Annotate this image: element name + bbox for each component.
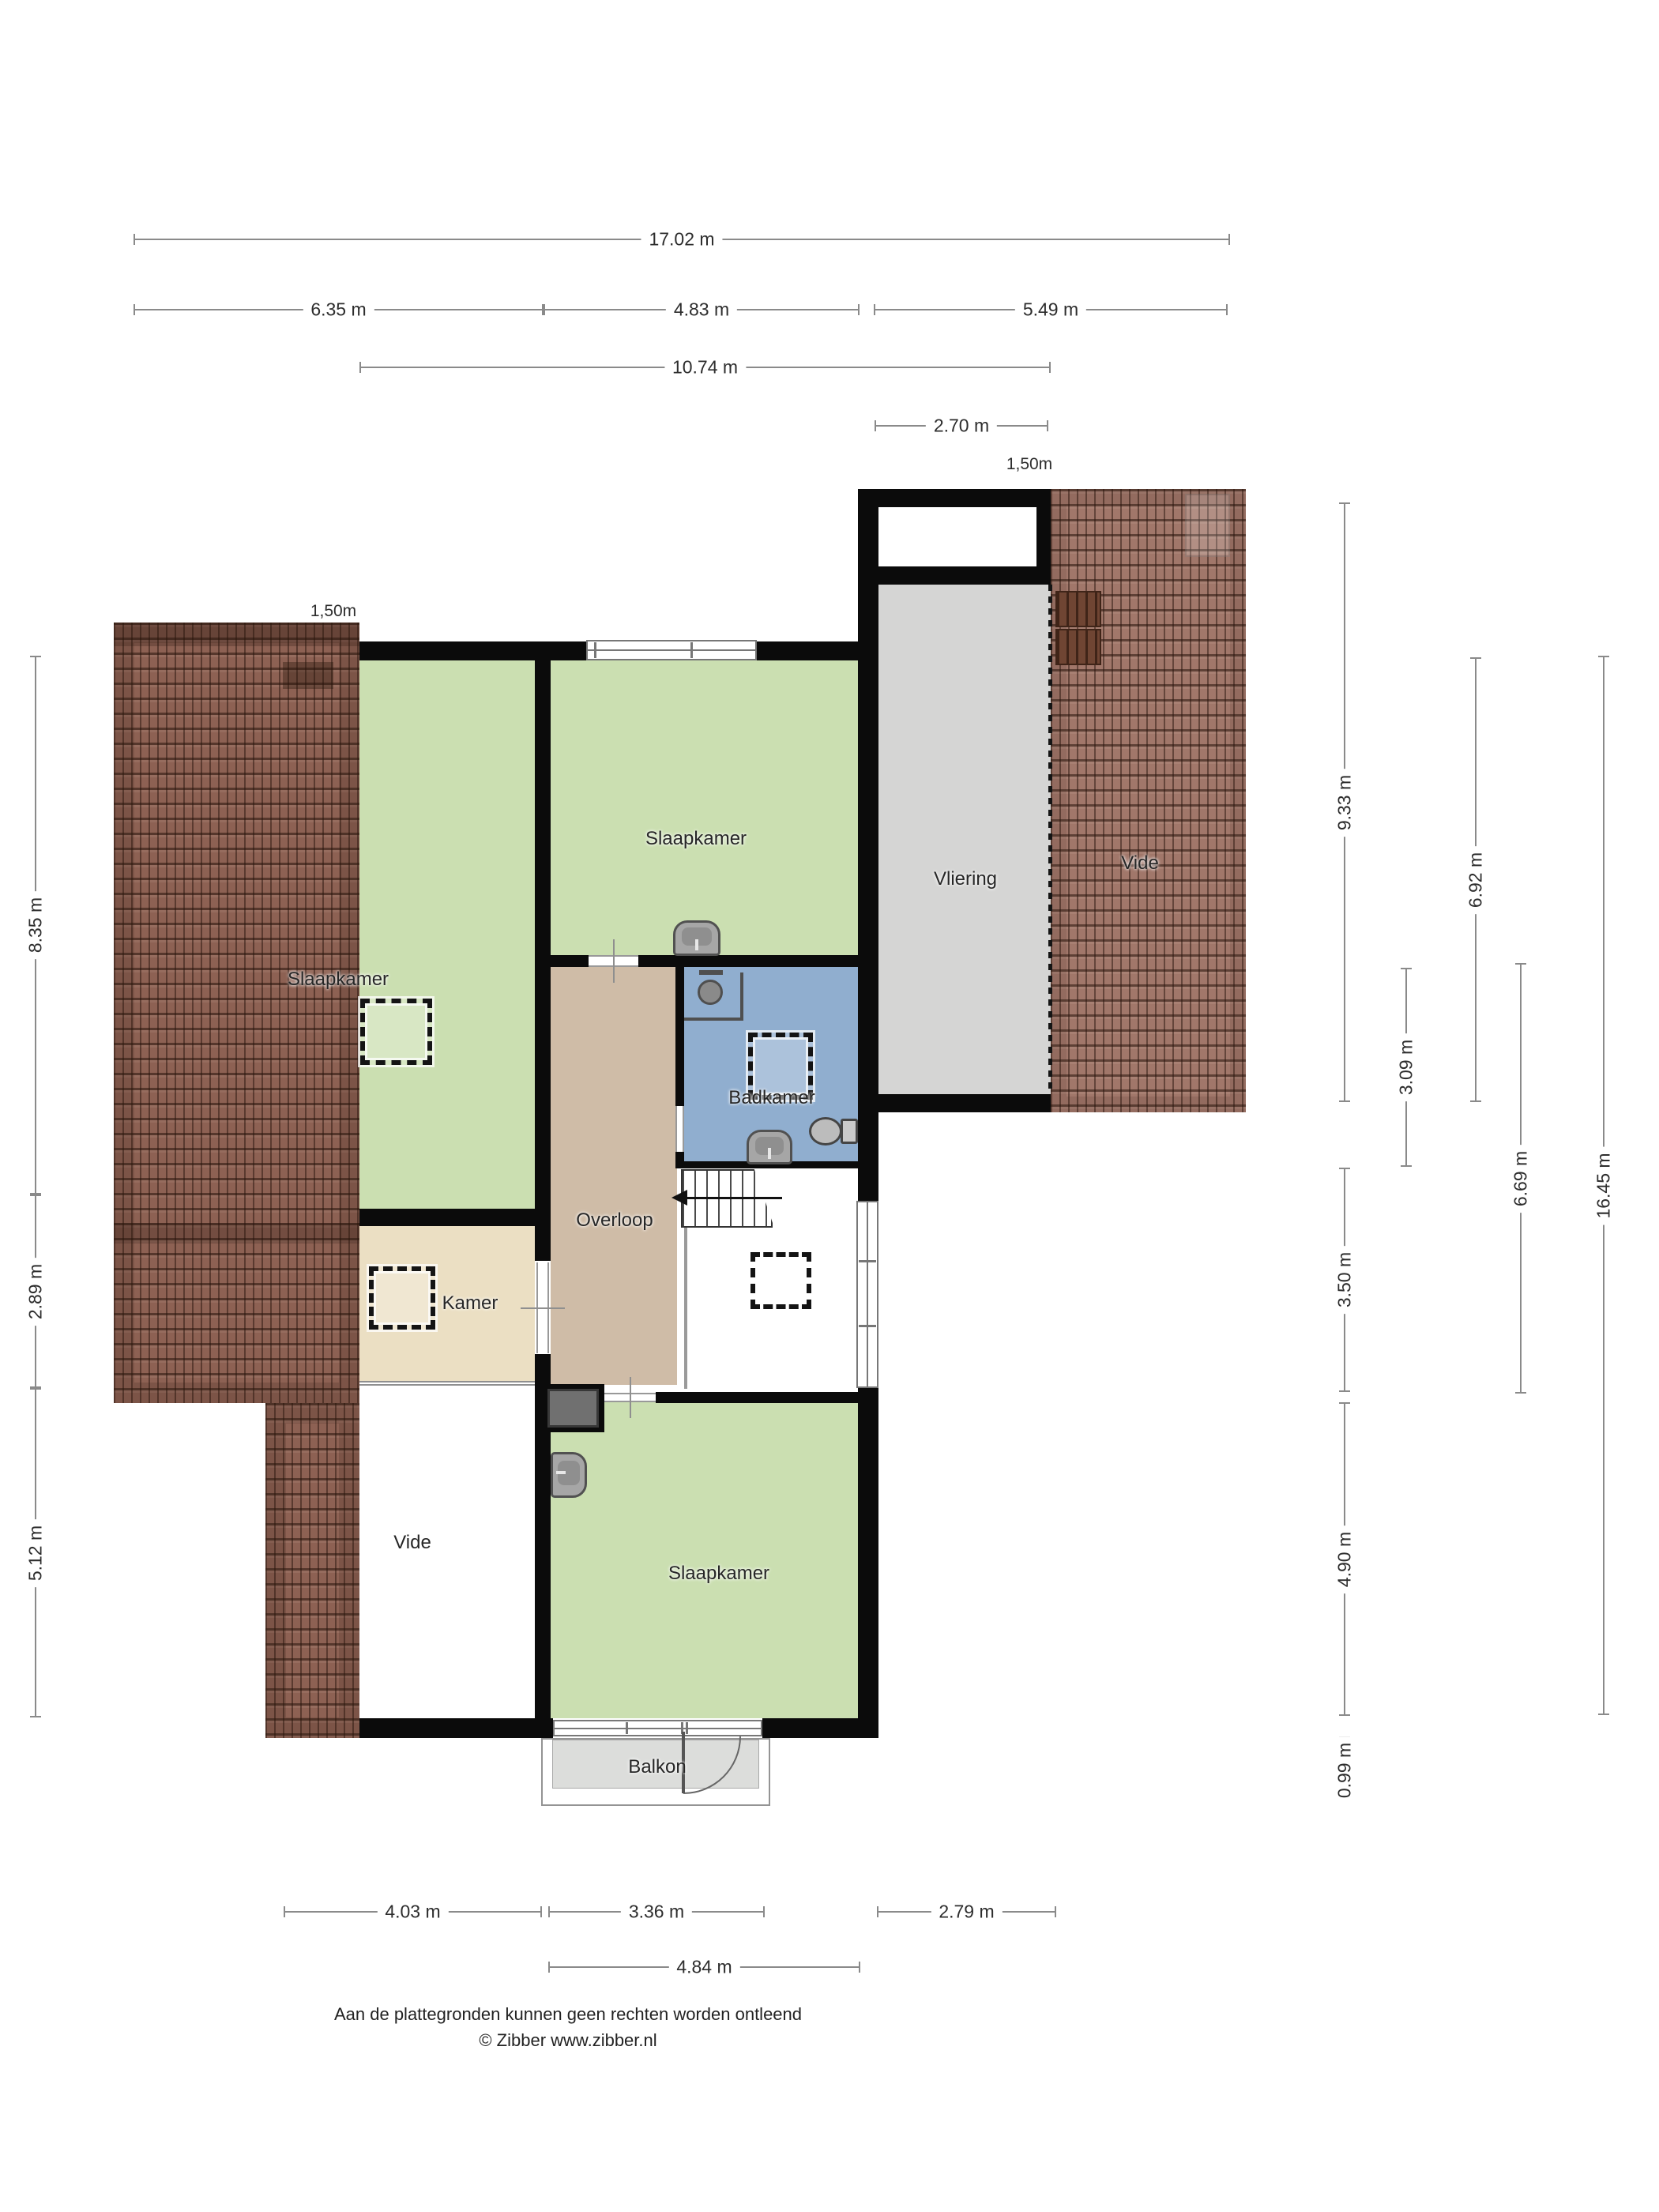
skylight-slaapkamer-left: [360, 999, 432, 1065]
window-top-glass: [588, 649, 755, 651]
dim-part: 3.50 m: [1334, 1246, 1356, 1314]
sink-badkamer: [747, 1130, 792, 1164]
window-balkon-divider-2: [686, 1722, 688, 1734]
dim-part: [1339, 1168, 1350, 1169]
window-east-glass: [867, 1202, 868, 1386]
dim-part: 17.02 m: [641, 229, 722, 250]
roof-right-ladder-2: [1055, 629, 1101, 665]
dim-part: [284, 1906, 285, 1917]
dim-part: 8.35 m: [25, 891, 47, 959]
dim-part: [1339, 1100, 1350, 1102]
dim-h-17.02m: 17.02 m: [134, 233, 1230, 246]
dim-part: [544, 304, 545, 315]
dim-part: 6.35 m: [303, 299, 374, 321]
room-slaapkamer-top: [547, 660, 858, 955]
dim-part: [874, 304, 875, 315]
dim-part: [1515, 963, 1526, 965]
room-label-badkamer-5: Badkamer: [728, 1087, 814, 1109]
chimney-block: [547, 1389, 599, 1428]
window-top: [586, 640, 757, 660]
sink-slaapkamer-top: [673, 920, 720, 956]
roof-left-strip: [265, 1403, 359, 1738]
door-slaapkamer-top-tick: [613, 939, 615, 983]
dim-part: [1470, 1100, 1481, 1102]
room-label-slaapkamer-0: Slaapkamer: [288, 969, 389, 991]
toilet-icon: [809, 1117, 842, 1145]
dim-v-5.12m: 5.12 m: [29, 1388, 42, 1717]
dim-part: 2.79 m: [931, 1902, 1002, 1923]
roof-right-ladder-1: [1055, 591, 1101, 627]
room-label-vide-8: Vide: [393, 1532, 431, 1554]
dim-h-4.83m: 4.83 m: [544, 303, 860, 316]
dim-part: [1055, 1906, 1056, 1917]
window-balkon-divider-0: [626, 1722, 628, 1734]
skylight-kamer: [369, 1266, 435, 1330]
dim-part: 6.92 m: [1465, 845, 1487, 913]
dim-part: 10.74 m: [664, 357, 746, 378]
door-slaapkamer-bottom-tick: [630, 1377, 631, 1418]
dim-h-6.35m: 6.35 m: [134, 303, 544, 316]
dim-part: [30, 1716, 41, 1717]
wall-annex-sub: [878, 566, 1052, 585]
room-slaapkamer-bottom: [551, 1402, 858, 1718]
kamer-vide-line: [359, 1381, 535, 1386]
dim-part: 4.90 m: [1334, 1525, 1356, 1593]
dim-h-5.49m: 5.49 m: [874, 303, 1228, 316]
window-east-divider-1: [859, 1325, 876, 1327]
wall-slpk-bottom-top: [656, 1392, 878, 1403]
dim-part: [1047, 420, 1048, 431]
dim-part: [1228, 234, 1230, 245]
wall-mid-b: [638, 955, 860, 967]
dim-part: [1470, 657, 1481, 659]
sink-slaapkamer-top-faucet-icon: [695, 939, 698, 950]
dim-part: [1401, 1165, 1412, 1167]
room-label-vliering-6: Vliering: [934, 868, 997, 890]
dim-part: [877, 1906, 878, 1917]
dim-v-16.45m: 16.45 m: [1597, 656, 1610, 1715]
skylight-stairwell: [750, 1252, 811, 1309]
dim-part: [134, 304, 135, 315]
dim-part: 5.12 m: [25, 1518, 47, 1586]
dim-v-2.89m: 2.89 m: [29, 1194, 42, 1388]
room-label-kamer-3: Kamer: [442, 1292, 498, 1315]
roof-right-dotted-line-3: [1048, 585, 1052, 1094]
room-overloop: [551, 966, 677, 1385]
footer-disclaimer: Aan de plattegronden kunnen geen rechten…: [334, 2001, 802, 2053]
dim-h-2.70m: 2.70 m: [875, 419, 1048, 432]
room-annex-room: [878, 507, 1036, 566]
room-label-slaapkamer-2: Slaapkamer: [668, 1563, 769, 1585]
dim-part: [1401, 968, 1412, 969]
dim-part: 0.99 m: [1334, 1736, 1356, 1804]
wall-east-main: [858, 489, 878, 1738]
stairs-arrow: [686, 1197, 782, 1199]
room-label-balkon-9: Balkon: [628, 1756, 686, 1778]
dim-v-6.92m: 6.92 m: [1469, 657, 1482, 1102]
dim-v-3.50m: 3.50 m: [1338, 1168, 1351, 1392]
dim-part: 3.09 m: [1396, 1033, 1417, 1101]
dim-v-6.69m: 6.69 m: [1514, 963, 1527, 1394]
dim-part: 2.70 m: [926, 416, 997, 437]
dim-v-8.35m: 8.35 m: [29, 656, 42, 1194]
door-badkamer: [675, 1106, 684, 1152]
wall-west-overloop-upper: [535, 656, 551, 1261]
dim-v-0.99m: 0.99 m: [1338, 1736, 1351, 1804]
room-label-overloop-4: Overloop: [576, 1209, 653, 1232]
dim-h-2.79m: 2.79 m: [877, 1905, 1056, 1918]
window-balkon-glass: [555, 1728, 761, 1729]
sink-slaapkamer-bottom-faucet-icon: [556, 1471, 566, 1474]
dim-part: [1226, 304, 1228, 315]
dim-part: 4.84 m: [668, 1957, 739, 1978]
door-kamer-overloop-tick: [521, 1307, 565, 1309]
dim-part: [1339, 502, 1350, 504]
roof-right-patch-light-0: [1185, 494, 1230, 557]
dim-h-10.74m: 10.74 m: [359, 361, 1051, 374]
shower-pipe-v: [740, 972, 743, 1020]
wall-bottom-right: [762, 1718, 878, 1738]
roof-left-patch-dark-0: [283, 662, 333, 689]
dim-part: 16.45 m: [1593, 1146, 1615, 1224]
dim-part: [1049, 362, 1051, 373]
dim-part: [359, 362, 361, 373]
dim-part: [858, 304, 860, 315]
headroom-label-0: 1,50m: [310, 602, 356, 621]
dim-part: [1339, 1714, 1350, 1716]
wall-badkamer-left-upper: [675, 966, 684, 1106]
dim-part: [1515, 1392, 1526, 1394]
dim-part: [875, 420, 876, 431]
toilet-tank: [841, 1119, 858, 1144]
dim-part: 5.49 m: [1015, 299, 1086, 321]
dim-part: [30, 1388, 41, 1390]
room-label-slaapkamer-1: Slaapkamer: [645, 828, 747, 850]
sink-slaapkamer-bottom: [551, 1452, 587, 1498]
dim-part: [1598, 656, 1609, 657]
window-east: [856, 1201, 878, 1388]
roof-right: [1051, 489, 1246, 1112]
wall-annex-top: [858, 489, 1052, 507]
room-label-vide-7: Vide: [1121, 852, 1159, 875]
window-east-divider-0: [859, 1260, 876, 1262]
shower-head-icon: [698, 980, 723, 1005]
shower-taps: [699, 970, 723, 975]
dim-v-3.09m: 3.09 m: [1400, 968, 1413, 1167]
stairs-arrow-head-icon: [671, 1190, 687, 1206]
disclaimer-text: Aan de plattegronden kunnen geen rechten…: [334, 2001, 802, 2027]
dim-part: [1598, 1714, 1609, 1715]
roof-left-band-dark-1: [114, 1223, 359, 1243]
dim-part: 4.83 m: [666, 299, 737, 321]
dim-part: [548, 1906, 550, 1917]
dim-part: 2.89 m: [25, 1257, 47, 1325]
dim-part: [134, 234, 135, 245]
dim-part: 6.69 m: [1510, 1144, 1532, 1212]
dim-part: [1339, 1390, 1350, 1392]
roof-left: [114, 623, 359, 1403]
dim-h-3.36m: 3.36 m: [548, 1905, 765, 1918]
sink-badkamer-faucet-icon: [768, 1148, 771, 1159]
window-top-divider-0: [594, 642, 596, 658]
dim-part: [30, 1194, 41, 1196]
window-balkon: [553, 1720, 762, 1736]
dim-part: [30, 656, 41, 657]
copyright-text: © Zibber www.zibber.nl: [334, 2027, 802, 2053]
dim-part: [1339, 1402, 1350, 1404]
dim-part: [548, 1962, 550, 1973]
dim-part: 9.33 m: [1334, 768, 1356, 836]
dim-part: [859, 1962, 860, 1973]
dim-part: 3.36 m: [621, 1902, 692, 1923]
room-vliering: [878, 585, 1051, 1094]
window-top-divider-1: [690, 642, 693, 658]
dim-part: 4.03 m: [377, 1902, 448, 1923]
dim-v-9.33m: 9.33 m: [1338, 502, 1351, 1102]
roof-left-band-dark-2: [114, 623, 359, 646]
dim-part: [540, 1906, 542, 1917]
dim-v-4.90m: 4.90 m: [1338, 1402, 1351, 1716]
dim-h-4.03m: 4.03 m: [284, 1905, 542, 1918]
headroom-label-1: 1,50m: [1006, 455, 1052, 474]
dim-part: [763, 1906, 765, 1917]
dim-h-4.84m: 4.84 m: [548, 1961, 860, 1973]
shower-pipe-h: [684, 1018, 743, 1021]
wall-badkamer-left-stub: [675, 1152, 684, 1161]
floorplan-canvas: SlaapkamerSlaapkamerSlaapkamerKamerOverl…: [0, 0, 1659, 2212]
